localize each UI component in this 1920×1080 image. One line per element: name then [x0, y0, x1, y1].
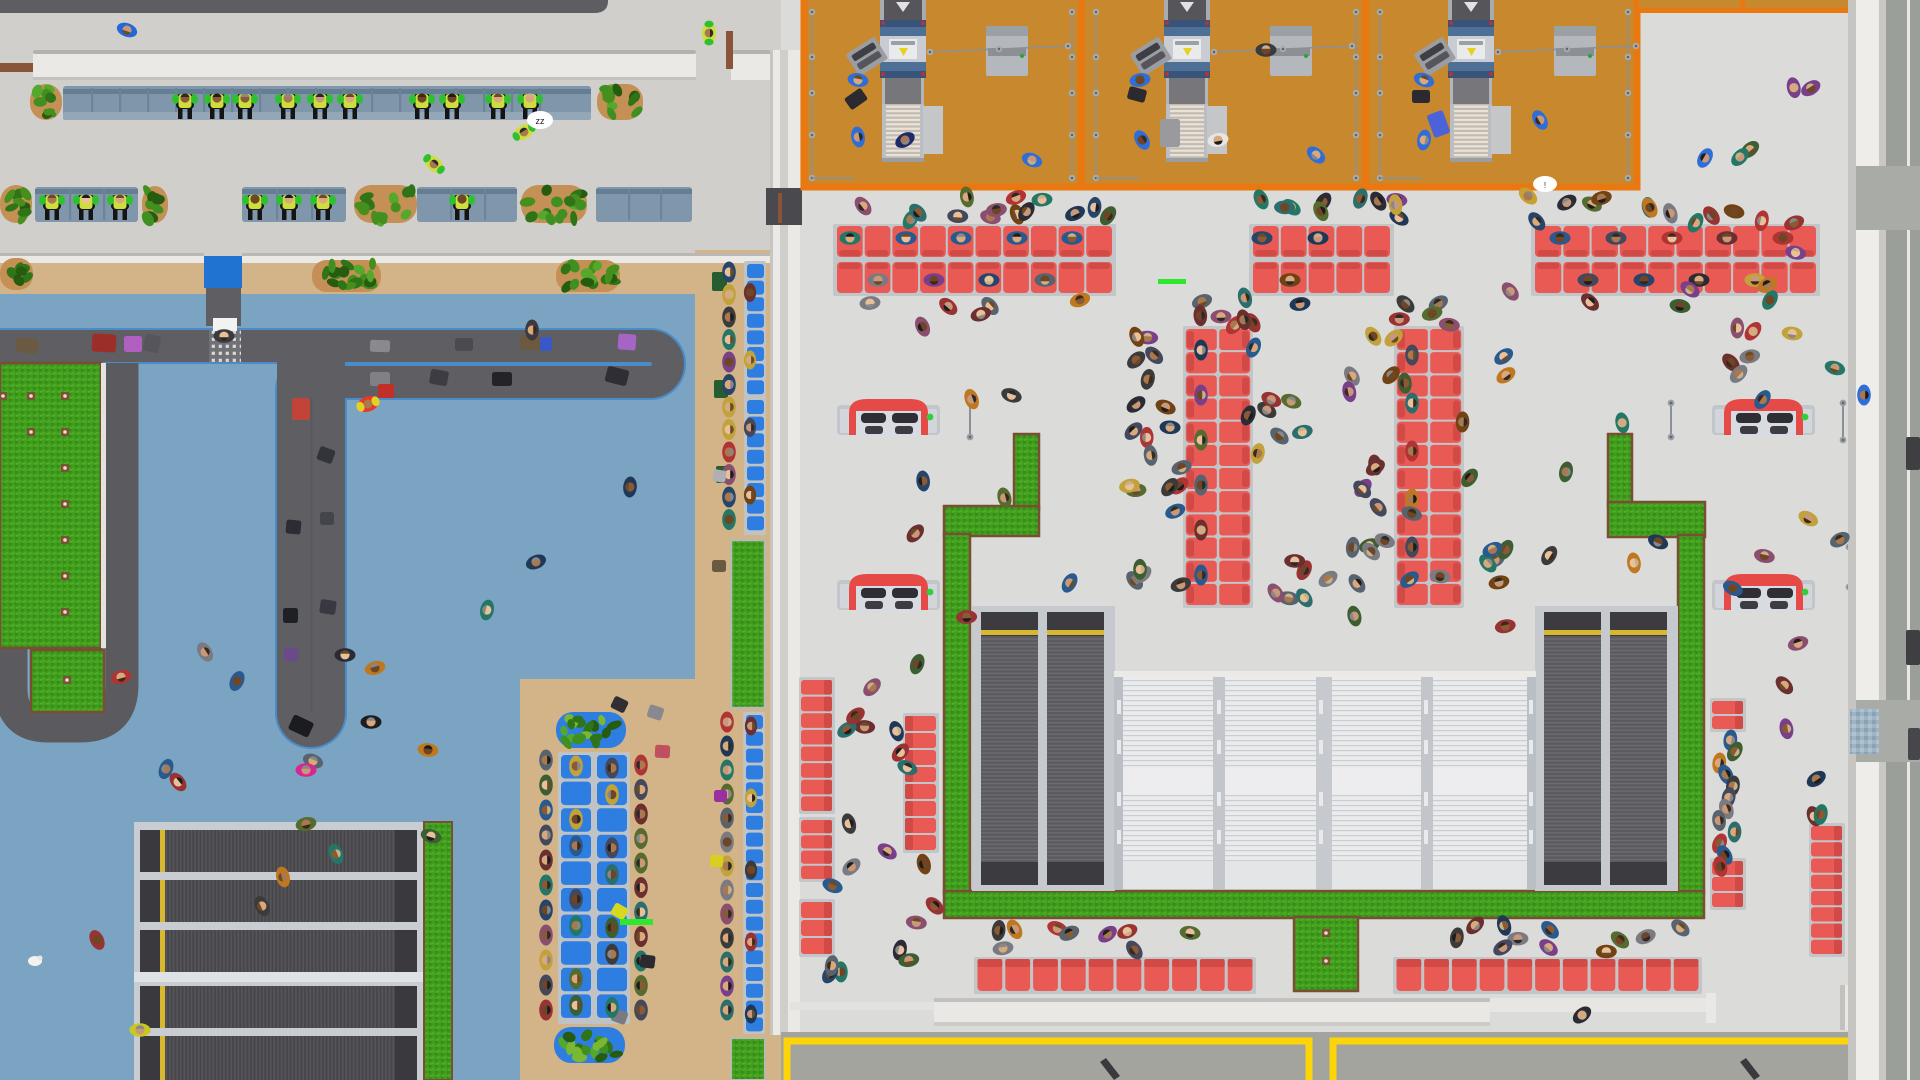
svg-text:zz: zz: [536, 116, 546, 126]
svg-text:!: !: [1544, 181, 1546, 190]
